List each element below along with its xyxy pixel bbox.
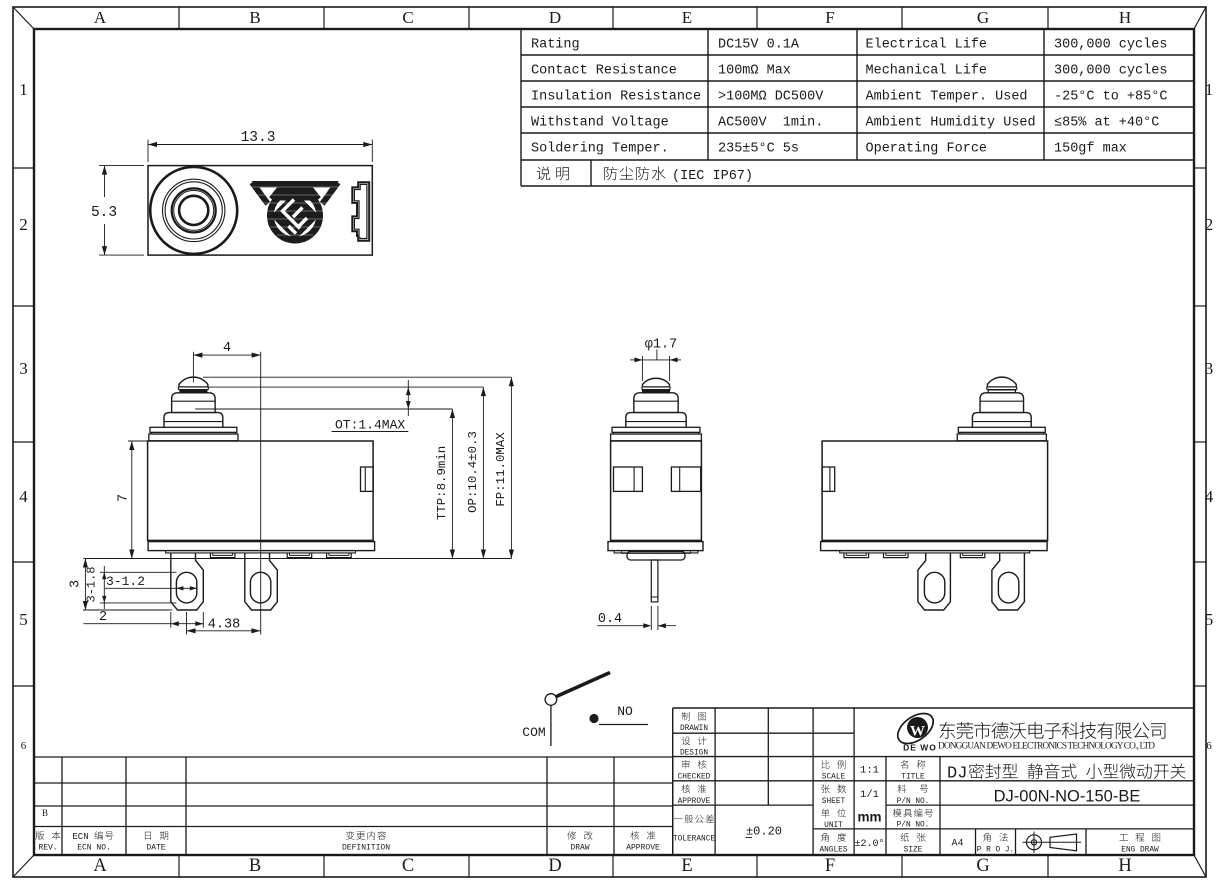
svg-text:FP:11.0MAX: FP:11.0MAX bbox=[494, 432, 508, 507]
svg-text:E: E bbox=[682, 8, 692, 27]
svg-text:SCALE: SCALE bbox=[822, 774, 846, 782]
svg-text:W: W bbox=[910, 724, 925, 740]
svg-text:NO: NO bbox=[617, 704, 633, 719]
svg-text:3-1.2: 3-1.2 bbox=[106, 574, 145, 589]
svg-text:OP:10.4±0.3: OP:10.4±0.3 bbox=[466, 431, 480, 513]
svg-text:2: 2 bbox=[1205, 215, 1214, 234]
svg-text:5: 5 bbox=[19, 610, 28, 629]
svg-text:DEFINITION: DEFINITION bbox=[342, 844, 390, 853]
svg-text:Mechanical Life: Mechanical Life bbox=[866, 64, 988, 79]
svg-text:5: 5 bbox=[1205, 610, 1214, 629]
svg-text:235±5°C 5s: 235±5°C 5s bbox=[718, 142, 799, 157]
svg-text:REV.: REV. bbox=[38, 844, 57, 853]
svg-text:SHEET: SHEET bbox=[822, 798, 846, 806]
svg-text:DESIGN: DESIGN bbox=[680, 749, 708, 757]
svg-text:DRAWIN: DRAWIN bbox=[680, 725, 708, 733]
svg-text:DJ: DJ bbox=[947, 765, 967, 784]
svg-text:H: H bbox=[1118, 856, 1131, 876]
svg-text:G: G bbox=[976, 856, 989, 876]
svg-text:300,000 cycles: 300,000 cycles bbox=[1054, 38, 1167, 53]
svg-text:DRAW: DRAW bbox=[570, 844, 589, 853]
svg-text:4: 4 bbox=[1205, 487, 1214, 506]
svg-text:Operating Force: Operating Force bbox=[866, 142, 988, 157]
svg-text:SIZE: SIZE bbox=[904, 846, 923, 854]
svg-text:3: 3 bbox=[1205, 359, 1214, 378]
svg-text:DJ-00N-NO-150-BE: DJ-00N-NO-150-BE bbox=[994, 788, 1141, 806]
svg-text:ECN NO.: ECN NO. bbox=[77, 844, 111, 853]
svg-text:4.38: 4.38 bbox=[208, 618, 240, 633]
svg-text:3-1.8: 3-1.8 bbox=[85, 566, 99, 602]
svg-text:6: 6 bbox=[21, 740, 27, 752]
svg-text:D: D bbox=[548, 856, 561, 876]
svg-text:mm: mm bbox=[857, 810, 881, 825]
svg-text:TTP:8.9min: TTP:8.9min bbox=[435, 446, 449, 520]
svg-text:A4: A4 bbox=[951, 839, 963, 850]
svg-text:F: F bbox=[825, 856, 835, 876]
svg-text:Insulation Resistance: Insulation Resistance bbox=[531, 90, 701, 105]
svg-text:AC500V 1min.: AC500V 1min. bbox=[718, 116, 823, 131]
svg-text:300,000 cycles: 300,000 cycles bbox=[1054, 64, 1167, 79]
svg-text:APPROVE: APPROVE bbox=[678, 798, 711, 806]
svg-text:F: F bbox=[825, 8, 834, 27]
svg-text:4: 4 bbox=[223, 341, 231, 356]
svg-text:P R O J.: P R O J. bbox=[977, 846, 1014, 854]
svg-text:6: 6 bbox=[1206, 740, 1212, 752]
svg-text:ECN: ECN bbox=[72, 832, 94, 842]
svg-text:COM: COM bbox=[522, 725, 545, 740]
svg-text:-25°C to +85°C: -25°C to +85°C bbox=[1054, 90, 1167, 105]
svg-text:DE WO: DE WO bbox=[903, 743, 937, 753]
svg-text:Electrical Life: Electrical Life bbox=[866, 38, 988, 53]
svg-text:C: C bbox=[402, 856, 414, 876]
svg-text:OT:1.4MAX: OT:1.4MAX bbox=[335, 418, 405, 433]
svg-text:Ambient Humidity Used: Ambient Humidity Used bbox=[866, 116, 1036, 131]
svg-text:B: B bbox=[42, 808, 48, 818]
svg-text:1/1: 1/1 bbox=[860, 789, 879, 801]
svg-text:Soldering Temper.: Soldering Temper. bbox=[531, 142, 669, 157]
svg-text:1: 1 bbox=[19, 80, 28, 99]
svg-text:C: C bbox=[402, 8, 413, 27]
svg-text:150gf max: 150gf max bbox=[1054, 142, 1127, 157]
svg-text:B: B bbox=[249, 8, 260, 27]
svg-text:Contact Resistance: Contact Resistance bbox=[531, 64, 677, 79]
svg-text:CHECKED: CHECKED bbox=[678, 774, 711, 782]
svg-text:P/N NO.: P/N NO. bbox=[897, 798, 930, 806]
svg-text:>100MΩ DC500V: >100MΩ DC500V bbox=[718, 90, 824, 105]
svg-text:D: D bbox=[549, 8, 561, 27]
svg-text:DC15V 0.1A: DC15V 0.1A bbox=[718, 38, 800, 53]
svg-text:2: 2 bbox=[99, 610, 107, 625]
svg-text:5.3: 5.3 bbox=[91, 205, 117, 221]
svg-text:4: 4 bbox=[19, 487, 28, 506]
svg-text:0.4: 0.4 bbox=[598, 612, 622, 627]
svg-text:DATE: DATE bbox=[146, 844, 165, 853]
svg-text:E: E bbox=[681, 856, 692, 876]
svg-text:±0.20: ±0.20 bbox=[746, 825, 782, 839]
svg-text:3: 3 bbox=[69, 580, 84, 588]
svg-text:13.3: 13.3 bbox=[241, 130, 276, 146]
svg-text:ANGLES: ANGLES bbox=[819, 846, 847, 854]
svg-text:1: 1 bbox=[1205, 80, 1214, 99]
svg-text:A: A bbox=[93, 856, 107, 876]
svg-text:φ1.7: φ1.7 bbox=[645, 338, 677, 353]
svg-text:B: B bbox=[249, 856, 261, 876]
svg-text:Ambient Temper. Used: Ambient Temper. Used bbox=[866, 90, 1028, 105]
svg-text:TITLE: TITLE bbox=[901, 774, 925, 782]
svg-text:G: G bbox=[977, 8, 989, 27]
svg-text:DONGGUAN DEWO ELECTRONICS TECH: DONGGUAN DEWO ELECTRONICS TECHNOLOGY CO.… bbox=[938, 742, 1155, 752]
svg-text:Withstand Voltage: Withstand Voltage bbox=[531, 116, 669, 131]
svg-text:UNIT: UNIT bbox=[824, 822, 843, 830]
svg-text:Rating: Rating bbox=[531, 38, 580, 53]
svg-text:P/N NO.: P/N NO. bbox=[897, 822, 930, 830]
svg-text:APPROVE: APPROVE bbox=[626, 844, 660, 853]
svg-text:≤85% at +40°C: ≤85% at +40°C bbox=[1054, 116, 1159, 131]
svg-text:(IEC IP67): (IEC IP67) bbox=[672, 169, 753, 184]
svg-text:2: 2 bbox=[19, 215, 28, 234]
svg-text:100mΩ Max: 100mΩ Max bbox=[718, 64, 791, 79]
svg-text:3: 3 bbox=[19, 359, 28, 378]
svg-text:±2.0°: ±2.0° bbox=[854, 838, 884, 850]
svg-text:1:1: 1:1 bbox=[860, 765, 879, 777]
svg-text:H: H bbox=[1119, 8, 1131, 27]
svg-text:A: A bbox=[94, 8, 107, 27]
svg-text:ENG DRAW: ENG DRAW bbox=[1121, 846, 1159, 854]
svg-text:7: 7 bbox=[117, 494, 132, 502]
svg-text:TOLERANCE: TOLERANCE bbox=[673, 836, 715, 844]
